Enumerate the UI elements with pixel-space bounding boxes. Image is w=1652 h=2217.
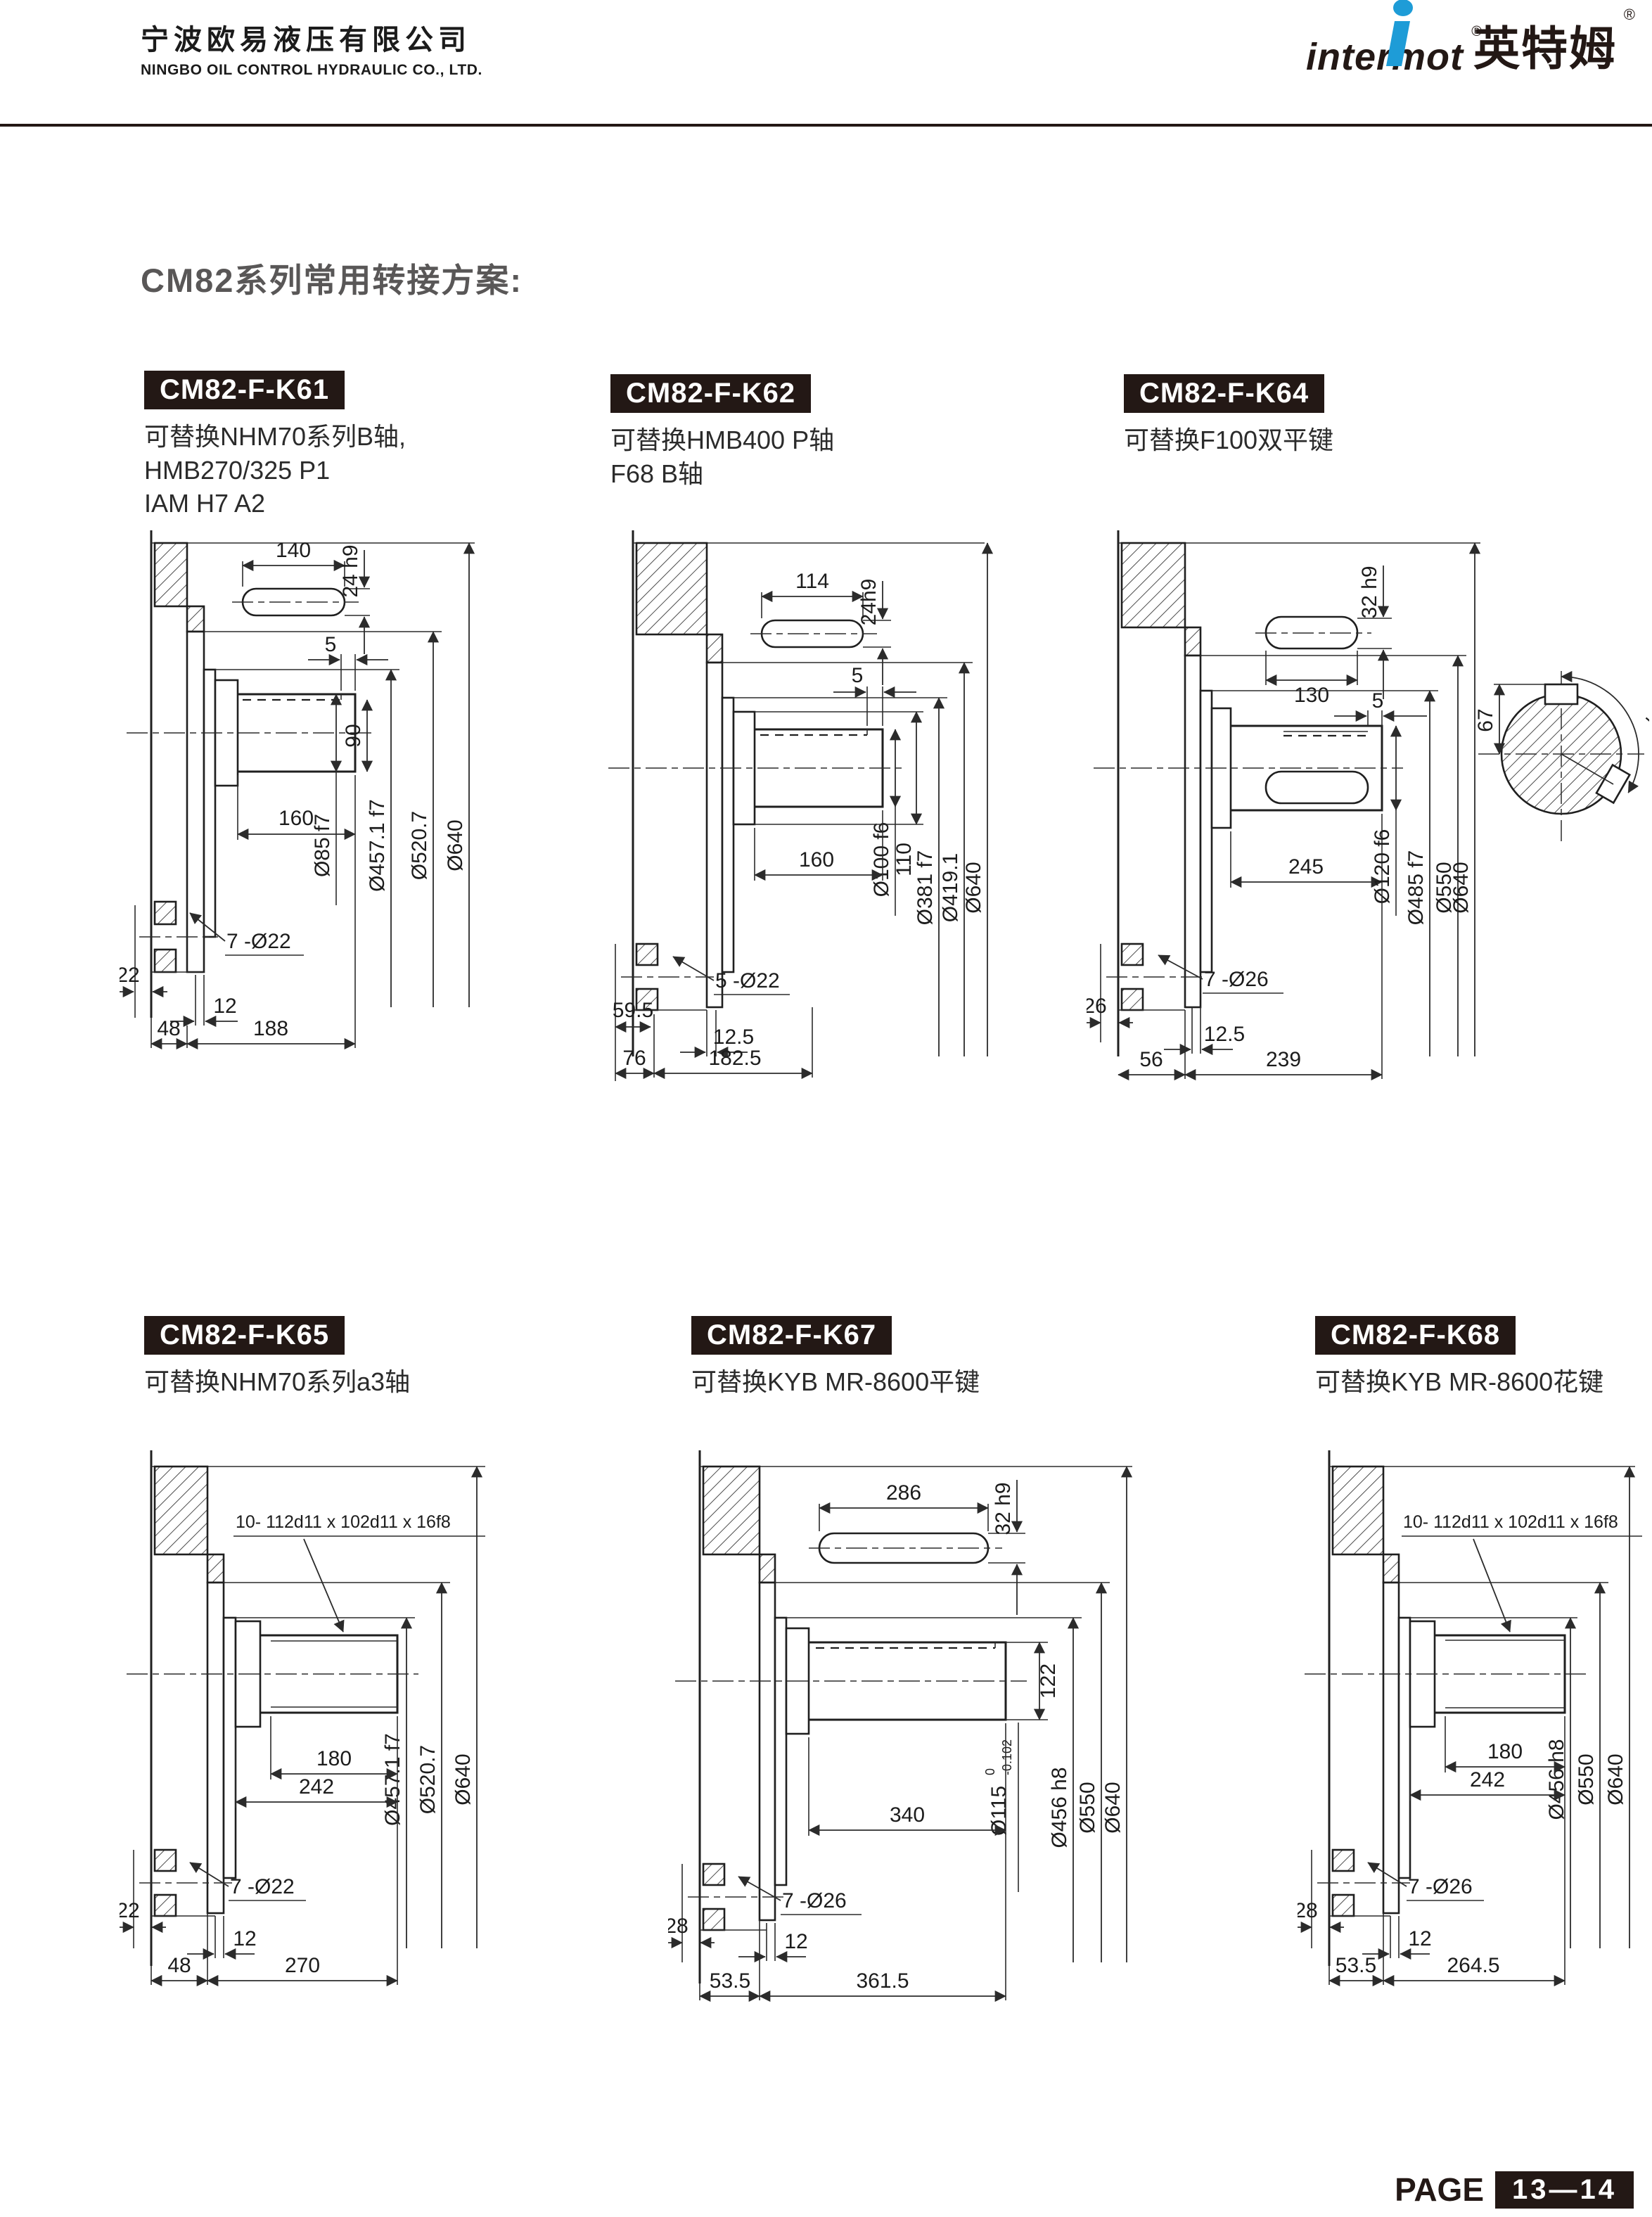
- dim-outer-dia: Ø640: [452, 1753, 475, 1805]
- dim-key-length: 286: [886, 1481, 921, 1504]
- model-badge: CM82-F-K61: [144, 371, 345, 409]
- dim-outer-dia: Ø640: [444, 819, 467, 871]
- dim-total-length: 239: [1266, 1048, 1301, 1071]
- dim-flange-width: 48: [157, 1017, 180, 1040]
- page-footer: PAGE 13—14: [1395, 2171, 1634, 2209]
- dim-bolt-holes: 7 -Ø26: [1408, 1875, 1473, 1898]
- dim-outer-dia: Ø640: [1449, 862, 1473, 913]
- description-line: 可替换F100双平键: [1124, 423, 1333, 457]
- drawing-cm82-f-k68: 10- 112d11 x 102d11 x 16f8 Ø456 h8 Ø550 …: [1298, 1442, 1649, 2047]
- dim-spigot-dia: Ø550: [1575, 1753, 1598, 1805]
- dim-flange-width: 53.5: [1336, 1954, 1376, 1977]
- description-line: 可替换NHM70系列B轴,: [144, 420, 406, 454]
- dim-pilot-dia: Ø457.1 f7: [381, 1733, 404, 1826]
- intermot-i-icon: [1382, 0, 1414, 66]
- header-divider: [0, 124, 1652, 127]
- panel-cm82-f-k64: CM82-F-K64 可替换F100双平键 130 32 h9: [1087, 374, 1652, 1134]
- dim-hole-offset: 12: [213, 995, 236, 1018]
- dim-key-height: 32 h9: [1358, 566, 1381, 618]
- dim-key-height: 24h9: [857, 579, 881, 626]
- drawing-cm82-f-k64: 130 32 h9 5 245 Ø120 f6 Ø485 f7 Ø550 Ø64…: [1087, 522, 1649, 1099]
- dim-step: 5: [325, 633, 337, 656]
- description-line: HMB270/325 P1: [144, 454, 406, 487]
- dim-flange-width: 48: [167, 1954, 191, 1977]
- dim-flange-width: 56: [1139, 1048, 1163, 1071]
- dim-total-length: 188: [253, 1017, 288, 1040]
- panel-cm82-f-k65: CM82-F-K65 可替换NHM70系列a3轴 10- 112d11 x 10…: [120, 1316, 513, 2090]
- model-description: 可替换NHM70系列a3轴: [144, 1365, 410, 1399]
- dim-spline-length: 180: [316, 1747, 352, 1770]
- dim-pilot-dia: Ø456 h8: [1048, 1767, 1071, 1848]
- dim-flange-width: 76: [622, 1047, 646, 1070]
- dim-bolt-holes: 5 -Ø22: [715, 969, 780, 992]
- description-line: 可替换NHM70系列a3轴: [144, 1365, 410, 1399]
- drawing-cm82-f-k65: 10- 112d11 x 102d11 x 16f8 Ø457.1 f7 Ø52…: [120, 1442, 499, 2033]
- dim-shaft-length: 160: [799, 848, 834, 871]
- dim-key-length: 140: [276, 539, 311, 562]
- dim-pilot-dia: Ø381 f7: [914, 850, 937, 926]
- description-line: 可替换HMB400 P轴: [610, 423, 834, 457]
- dim-tol-upper: 0: [983, 1768, 997, 1775]
- dim-shaft-length: 245: [1288, 855, 1324, 879]
- company-block: 宁波欧易液压有限公司 NINGBO OIL CONTROL HYDRAULIC …: [141, 17, 482, 79]
- dim-flange-offset: 28: [668, 1915, 689, 1938]
- description-line: 可替换KYB MR-8600花键: [1315, 1365, 1603, 1399]
- dim-bolt-holes: 7 -Ø26: [782, 1889, 847, 1912]
- dim-total-length: 270: [285, 1954, 320, 1977]
- dim-bolt-holes: 7 -Ø22: [226, 930, 291, 953]
- dim-step: 5: [852, 664, 864, 687]
- dim-spline-spec: 10- 112d11 x 102d11 x 16f8: [236, 1512, 451, 1532]
- model-description: 可替换F100双平键: [1124, 423, 1333, 457]
- dim-shaft-length: 340: [890, 1803, 925, 1827]
- dim-flange-offset: 26: [1087, 995, 1107, 1018]
- dim-hole-offset: 12: [784, 1930, 807, 1953]
- model-badge: CM82-F-K62: [610, 374, 811, 413]
- dim-key-height: 24 h9: [339, 544, 362, 597]
- panel-cm82-f-k62: CM82-F-K62 可替换HMB400 P轴 F68 B轴 114 24h9: [601, 374, 1023, 1134]
- dim-total-length: 361.5: [856, 1969, 909, 1993]
- dim-flange-offset: 22: [120, 1899, 140, 1922]
- dim-outer-dia: Ø640: [1101, 1782, 1125, 1833]
- dim-bolt-holes: 7 -Ø22: [230, 1875, 295, 1898]
- model-badge: CM82-F-K64: [1124, 374, 1324, 413]
- drawing-cm82-f-k67: 286 32 h9 122 Ø115 0 -0.102 Ø456 h8 Ø550…: [668, 1442, 1160, 2047]
- model-description: 可替换HMB400 P轴 F68 B轴: [610, 423, 834, 490]
- dim-bolt-holes: 7 -Ø26: [1204, 968, 1269, 991]
- dim-shaft-length: 160: [278, 807, 314, 830]
- dim-hub-dia: 110: [892, 843, 916, 876]
- dim-end-angle: 120°: [1641, 703, 1649, 749]
- panel-cm82-f-k68: CM82-F-K68 可替换KYB MR-8600花键 10- 112d11 x…: [1298, 1316, 1652, 2090]
- model-badge: CM82-F-K67: [691, 1316, 892, 1355]
- dim-hole-offset: 12: [1408, 1927, 1431, 1950]
- dim-pilot-dia: Ø485 f7: [1404, 850, 1428, 926]
- drawing-cm82-f-k61: 140 24 h9 5 90 Ø85 f7 Ø457.1 f7 Ø520.7 Ø…: [120, 522, 492, 1078]
- page-title: CM82系列常用转接方案:: [141, 253, 523, 302]
- dim-tol-lower: -0.102: [1000, 1739, 1014, 1775]
- dim-key-length: 114: [795, 570, 829, 593]
- model-badge: CM82-F-K65: [144, 1316, 345, 1355]
- dim-step: 5: [1372, 689, 1384, 713]
- dim-flange-offset: 28: [1298, 1899, 1318, 1922]
- brand-logo: intermot ® 英特姆 ®: [1306, 11, 1635, 79]
- dim-spigot-dia: Ø550: [1076, 1782, 1099, 1833]
- dim-spigot-dia: Ø520.7: [408, 811, 431, 880]
- dim-key-depth: 90: [342, 724, 365, 747]
- dim-key-length: 130: [1294, 684, 1329, 707]
- dim-key-depth: 122: [1037, 1663, 1060, 1699]
- shaft-end-view: 120° 67: [1474, 671, 1649, 842]
- dim-spigot-dia: Ø419.1: [939, 853, 962, 922]
- dim-shaft-length: 242: [299, 1775, 334, 1798]
- dim-flange-offset: 59.5: [613, 999, 653, 1022]
- drawing-cm82-f-k62: 114 24h9 5 Ø100 f6 110 Ø381 f7 Ø419.1 Ø6…: [601, 522, 1006, 1099]
- model-badge: CM82-F-K68: [1315, 1316, 1516, 1355]
- model-description: 可替换KYB MR-8600花键: [1315, 1365, 1603, 1399]
- dim-outer-dia: Ø640: [1604, 1753, 1627, 1805]
- company-name-cn: 宁波欧易液压有限公司: [141, 17, 482, 58]
- dim-key-height: 32 h9: [992, 1482, 1015, 1535]
- model-description: 可替换NHM70系列B轴, HMB270/325 P1 IAM H7 A2: [144, 420, 406, 520]
- dim-pilot-dia: Ø457.1 f7: [366, 799, 389, 892]
- dim-spline-spec: 10- 112d11 x 102d11 x 16f8: [1403, 1512, 1618, 1532]
- dim-hole-offset: 12.5: [1204, 1023, 1245, 1046]
- page-number-badge: 13—14: [1495, 2171, 1634, 2209]
- dim-spline-length: 180: [1487, 1740, 1523, 1763]
- brand-cn-text: 英特姆: [1473, 23, 1617, 75]
- brand-latin-wrap: intermot ®: [1306, 11, 1464, 79]
- description-line: IAM H7 A2: [144, 487, 406, 520]
- dim-flange-offset: 22: [120, 964, 140, 987]
- dim-spigot-dia: Ø520.7: [416, 1745, 440, 1814]
- dim-hole-offset: 12: [233, 1927, 256, 1950]
- dim-shaft-dia-tol: Ø115 0 -0.102: [983, 1739, 1014, 1836]
- model-description: 可替换KYB MR-8600平键: [691, 1365, 980, 1399]
- panel-cm82-f-k67: CM82-F-K67 可替换KYB MR-8600平键 286 32 h9 12: [668, 1316, 1174, 2090]
- dim-hole-offset: 12.5: [713, 1026, 754, 1049]
- dim-total-length: 264.5: [1447, 1954, 1499, 1977]
- dim-shaft-dia: Ø115: [987, 1786, 1011, 1836]
- registered-mark-icon: ®: [1624, 6, 1635, 24]
- dim-shaft-dia: Ø100 f6: [870, 822, 893, 897]
- page-label: PAGE: [1395, 2171, 1484, 2209]
- brand-cn-wrap: 英特姆 ®: [1473, 11, 1635, 79]
- description-line: 可替换KYB MR-8600平键: [691, 1365, 980, 1399]
- dim-total-length: 182.5: [708, 1047, 761, 1070]
- dim-outer-dia: Ø640: [962, 862, 985, 913]
- description-line: F68 B轴: [610, 457, 834, 491]
- dim-shaft-length: 242: [1470, 1768, 1505, 1791]
- dim-end-key-height: 67: [1474, 708, 1497, 731]
- company-name-en: NINGBO OIL CONTROL HYDRAULIC CO., LTD.: [141, 62, 482, 79]
- dim-shaft-dia: Ø85 f7: [311, 814, 334, 877]
- dim-flange-width: 53.5: [710, 1969, 750, 1993]
- panel-cm82-f-k61: CM82-F-K61 可替换NHM70系列B轴, HMB270/325 P1 I…: [120, 371, 513, 1130]
